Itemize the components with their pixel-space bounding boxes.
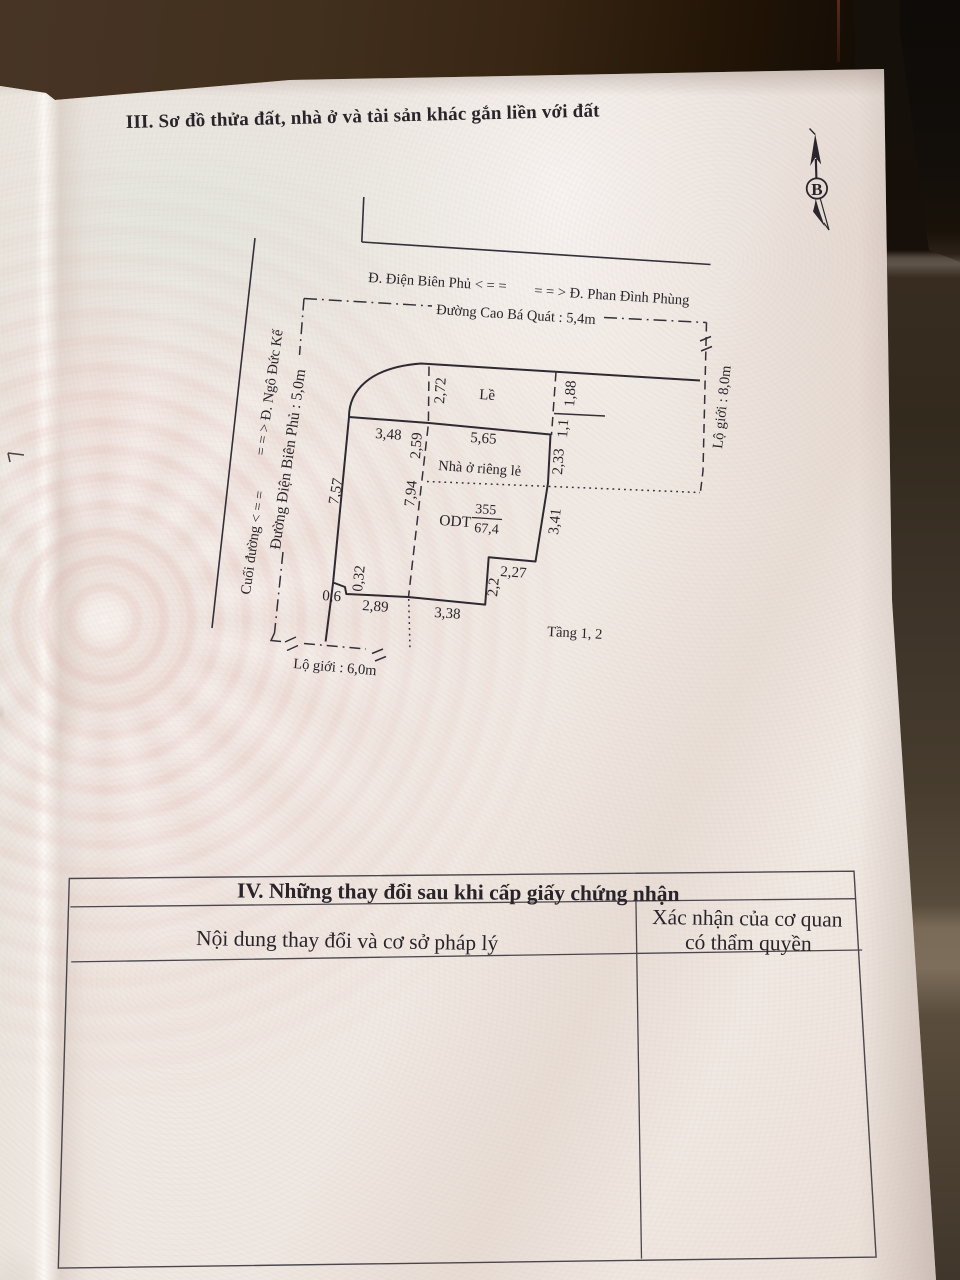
svg-text:ODT: ODT bbox=[439, 512, 472, 531]
svg-text:0,6: 0,6 bbox=[322, 588, 342, 605]
svg-text:3,38: 3,38 bbox=[434, 605, 461, 623]
svg-text:Nội dung thay đổi và cơ sở phá: Nội dung thay đổi và cơ sở pháp lý bbox=[196, 926, 499, 955]
svg-text:7,94: 7,94 bbox=[402, 479, 421, 507]
svg-text:2,89: 2,89 bbox=[362, 598, 389, 616]
svg-text:Lộ giới : 6,0m: Lộ giới : 6,0m bbox=[293, 656, 378, 679]
svg-text:2,72: 2,72 bbox=[432, 377, 450, 404]
svg-text:2,59: 2,59 bbox=[408, 432, 426, 459]
svg-text:355: 355 bbox=[475, 502, 497, 518]
svg-text:IV. Những thay đổi sau khi cấp: IV. Những thay đổi sau khi cấp giấy chứn… bbox=[237, 879, 680, 906]
svg-text:Cuối đường < = =: Cuối đường < = = bbox=[238, 490, 268, 596]
svg-text:Tầng 1, 2: Tầng 1, 2 bbox=[547, 624, 603, 643]
svg-text:Lề: Lề bbox=[479, 387, 496, 404]
svg-text:5,65: 5,65 bbox=[470, 430, 497, 448]
svg-text:có thẩm quyền: có thẩm quyền bbox=[685, 930, 812, 956]
svg-text:Đ. Điện Biên Phủ < = =: Đ. Điện Biên Phủ < = = bbox=[368, 270, 507, 295]
svg-text:B: B bbox=[811, 180, 822, 199]
svg-text:= = > Đ. Phan Đình Phùng: = = > Đ. Phan Đình Phùng bbox=[534, 283, 690, 309]
svg-text:Xác nhận của cơ quan: Xác nhận của cơ quan bbox=[652, 905, 843, 932]
svg-text:67,4: 67,4 bbox=[474, 521, 499, 538]
svg-text:7,57: 7,57 bbox=[326, 477, 346, 506]
svg-text:Lộ giới : 8,0m: Lộ giới : 8,0m bbox=[710, 364, 735, 449]
svg-text:= = > Đ. Ngô Đức Kế: = = > Đ. Ngô Đức Kế bbox=[253, 328, 287, 457]
svg-text:III. Sơ đồ thửa đất, nhà ở và: III. Sơ đồ thửa đất, nhà ở và tài sản kh… bbox=[126, 100, 601, 133]
svg-text:1,1: 1,1 bbox=[555, 418, 572, 438]
svg-text:Nhà ở riêng lẻ: Nhà ở riêng lẻ bbox=[438, 458, 522, 480]
svg-text:3,41: 3,41 bbox=[546, 508, 565, 536]
svg-text:Đường Cao Bá Quát : 5,4m: Đường Cao Bá Quát : 5,4m bbox=[436, 302, 597, 328]
svg-text:2,27: 2,27 bbox=[500, 564, 528, 582]
svg-text:0,32: 0,32 bbox=[350, 565, 369, 593]
svg-text:3,48: 3,48 bbox=[375, 426, 402, 444]
svg-text:2,2: 2,2 bbox=[485, 577, 503, 597]
svg-text:1,88: 1,88 bbox=[562, 380, 580, 407]
svg-text:2,33: 2,33 bbox=[550, 448, 568, 475]
